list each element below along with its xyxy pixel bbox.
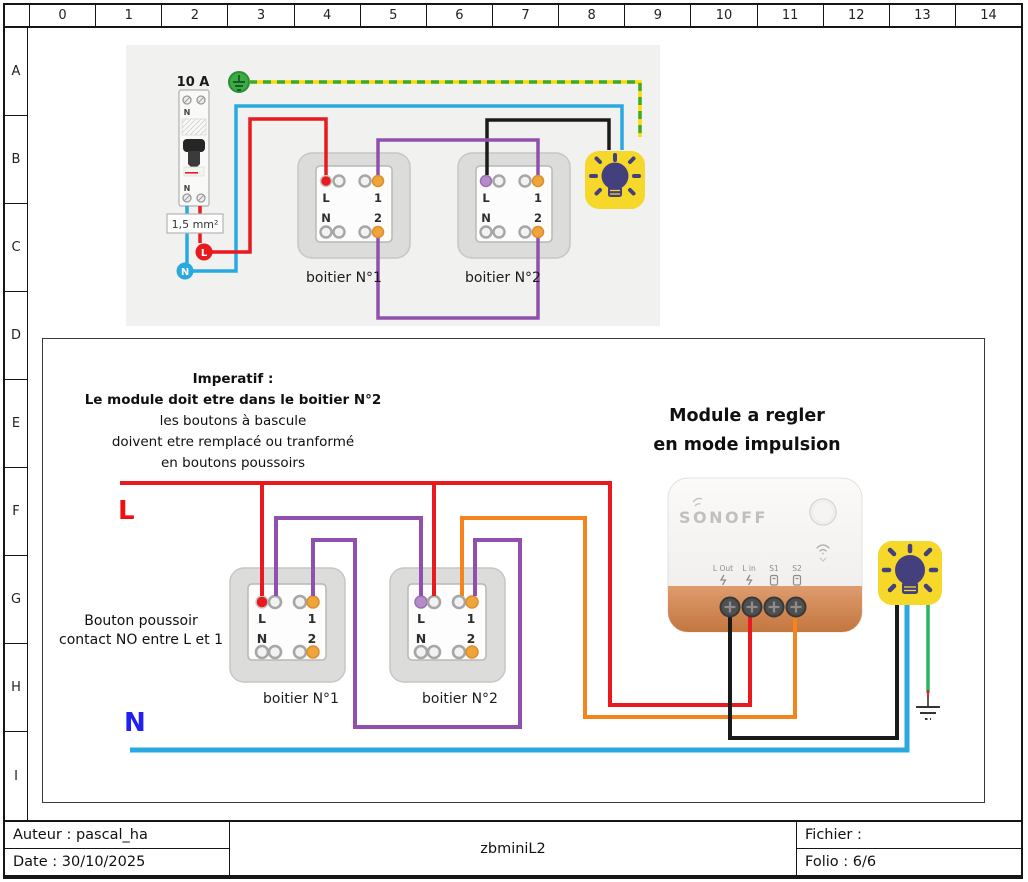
push-button-line: contact NO entre L et 1 [31, 631, 251, 650]
column-header: 0 1 2 3 4 5 6 7 8 9 10 11 12 13 14 [3, 3, 1023, 28]
module-mode-line: en mode impulsion [627, 431, 867, 460]
author-field: Auteur : pascal_ha [5, 822, 229, 849]
document-title: zbminiL2 [230, 822, 796, 875]
grid-col-label: 8 [559, 5, 625, 26]
date-field: Date : 30/10/2025 [5, 849, 229, 875]
grid-col-label: 2 [162, 5, 228, 26]
push-button-line: Bouton poussoir [31, 612, 251, 631]
imperatif-line: Le module doit etre dans le boitier N°2 [73, 390, 393, 411]
title-block: Auteur : pascal_ha Date : 30/10/2025 zbm… [3, 820, 1023, 879]
grid-row-label: G [5, 556, 27, 644]
imperatif-line: doivent etre remplacé ou tranformé [73, 432, 393, 453]
imperatif-line: les boutons à bascule [73, 411, 393, 432]
module-mode-line: Module a regler [627, 402, 867, 431]
grid-col-label: 14 [956, 5, 1021, 26]
grid-row-label: C [5, 204, 27, 292]
imperatif-line: Imperatif : [73, 369, 393, 390]
grid-row-label: A [5, 28, 27, 116]
grid-col-label: 12 [824, 5, 890, 26]
grid-col-label: 9 [625, 5, 691, 26]
grid-corner [5, 5, 30, 26]
grid-col-label: 4 [295, 5, 361, 26]
imperatif-line: en boutons poussoirs [73, 453, 393, 474]
grid-col-label: 13 [890, 5, 956, 26]
module-mode-note: Module a regler en mode impulsion [627, 402, 867, 460]
grid-col-label: 7 [493, 5, 559, 26]
grid-row-label: F [5, 468, 27, 556]
schematic-page: 0 1 2 3 4 5 6 7 8 9 10 11 12 13 14 A B C… [0, 0, 1028, 882]
live-line-label: L [118, 496, 135, 526]
neutral-line-label: N [124, 708, 146, 738]
grid-row-label: E [5, 380, 27, 468]
push-button-note: Bouton poussoir contact NO entre L et 1 [31, 612, 251, 650]
grid-row-label: D [5, 292, 27, 380]
grid-col-label: 3 [228, 5, 294, 26]
grid-row-label: B [5, 116, 27, 204]
grid-row-label: H [5, 644, 27, 732]
folio-field: Folio : 6/6 [797, 849, 1021, 875]
grid-col-label: 0 [30, 5, 96, 26]
top-diagram-background [126, 45, 660, 326]
title-block-left: Auteur : pascal_ha Date : 30/10/2025 [5, 822, 230, 875]
grid-col-label: 1 [96, 5, 162, 26]
imperatif-note: Imperatif : Le module doit etre dans le … [73, 369, 393, 474]
grid-col-label: 11 [758, 5, 824, 26]
grid-col-label: 10 [691, 5, 757, 26]
file-field: Fichier : [797, 822, 1021, 849]
title-block-right: Fichier : Folio : 6/6 [796, 822, 1021, 875]
row-header: A B C D E F G H I [3, 28, 28, 820]
grid-row-label: I [5, 732, 27, 820]
grid-col-label: 5 [361, 5, 427, 26]
grid-col-label: 6 [427, 5, 493, 26]
